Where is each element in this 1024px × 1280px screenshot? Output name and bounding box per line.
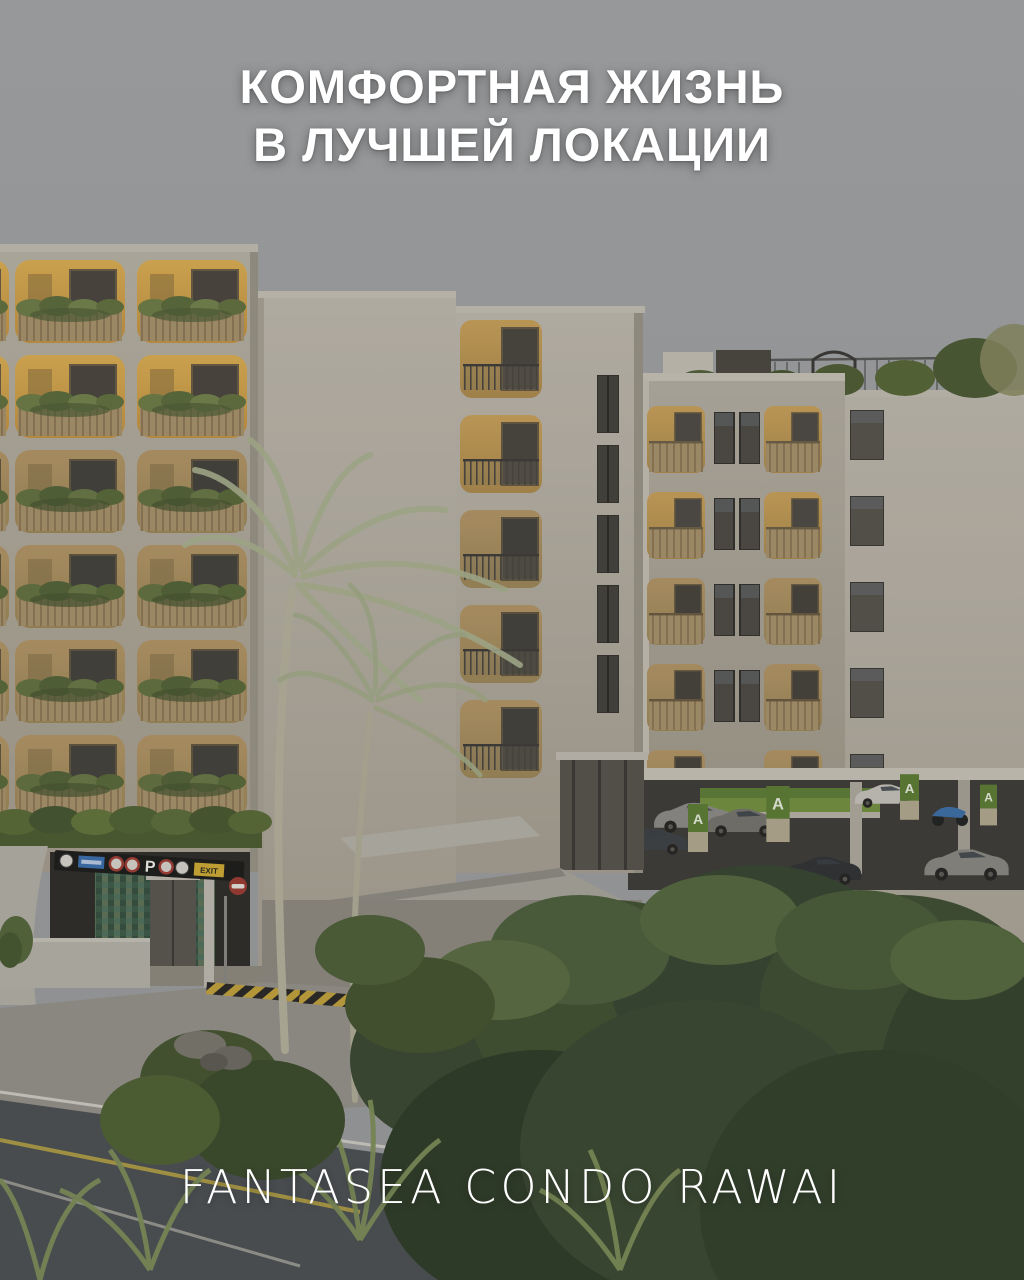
dim-overlay	[0, 0, 1024, 1280]
project-name: FANTASEA CONDO RAWAI	[0, 1160, 1024, 1214]
headline-line1: КОМФОРТНАЯ ЖИЗНЬ	[0, 58, 1024, 116]
render-scene: A	[0, 0, 1024, 1280]
headline-line2: В ЛУЧШЕЙ ЛОКАЦИИ	[0, 116, 1024, 174]
hero-image: A	[0, 0, 1024, 1280]
headline: КОМФОРТНАЯ ЖИЗНЬ В ЛУЧШЕЙ ЛОКАЦИИ	[0, 58, 1024, 174]
